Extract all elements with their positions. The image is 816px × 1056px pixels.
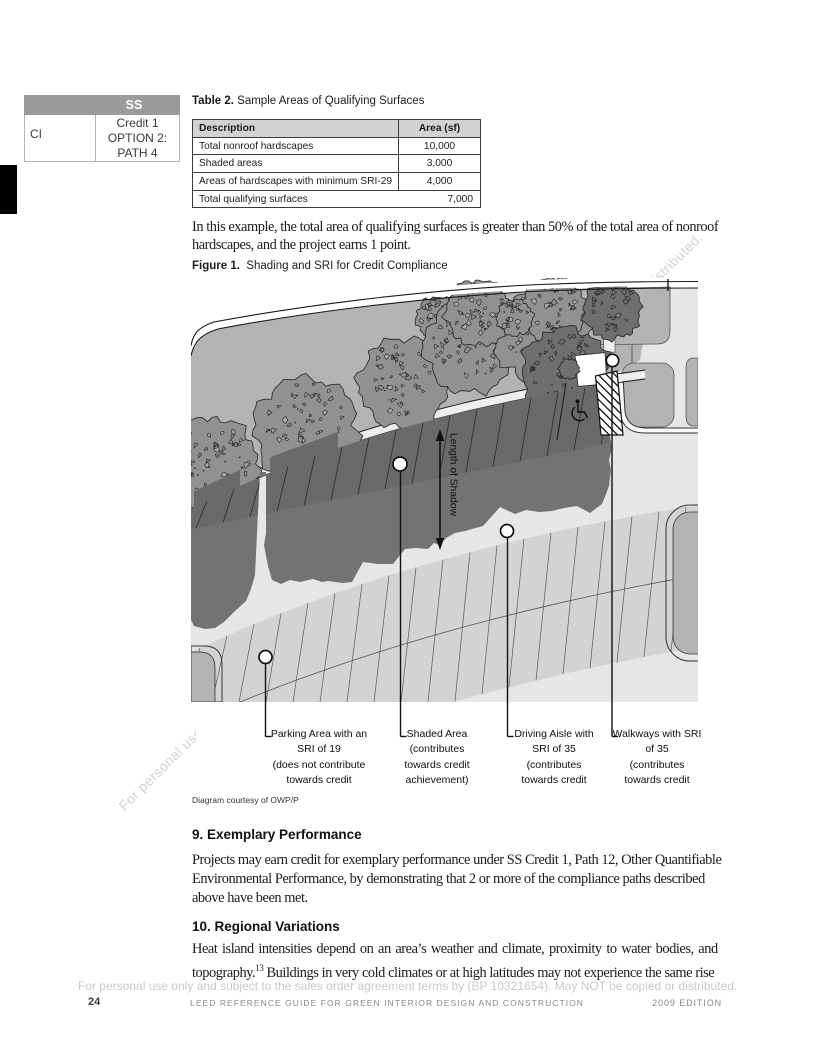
svg-text:Length of Shadow: Length of Shadow [448, 433, 459, 517]
